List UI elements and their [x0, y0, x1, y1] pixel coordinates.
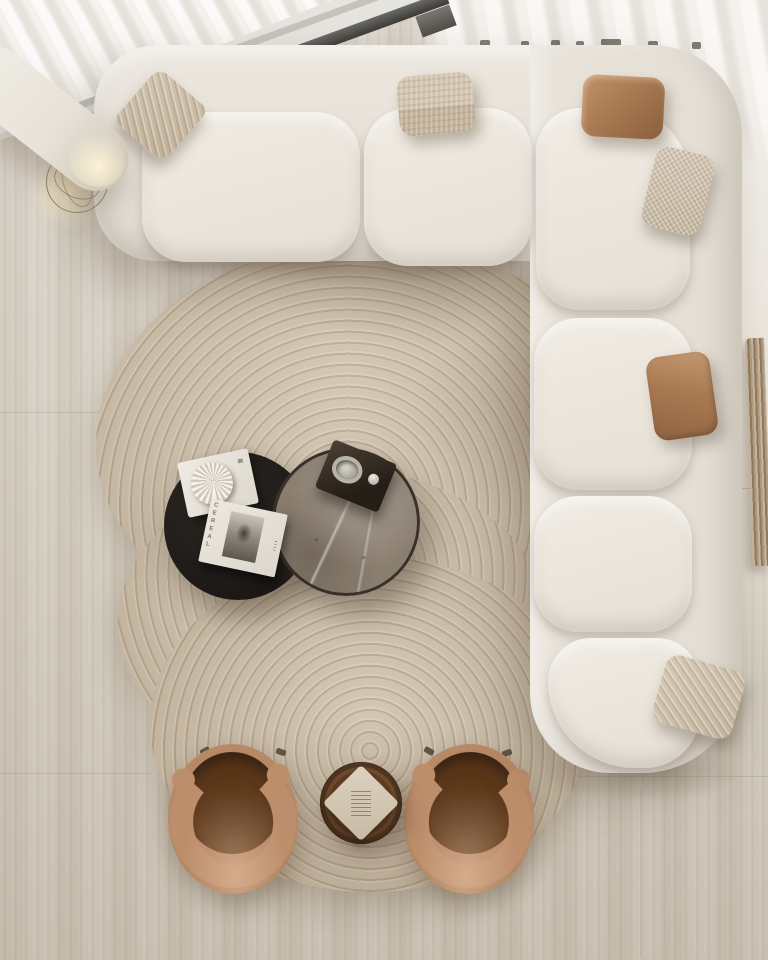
throw-pillow-velvet	[580, 74, 665, 140]
throw-pillow-striped	[396, 71, 477, 137]
seat-cushion	[534, 496, 692, 632]
living-room-top-view: CEREAL	[0, 0, 768, 960]
throw-pillow-velvet	[644, 350, 719, 442]
